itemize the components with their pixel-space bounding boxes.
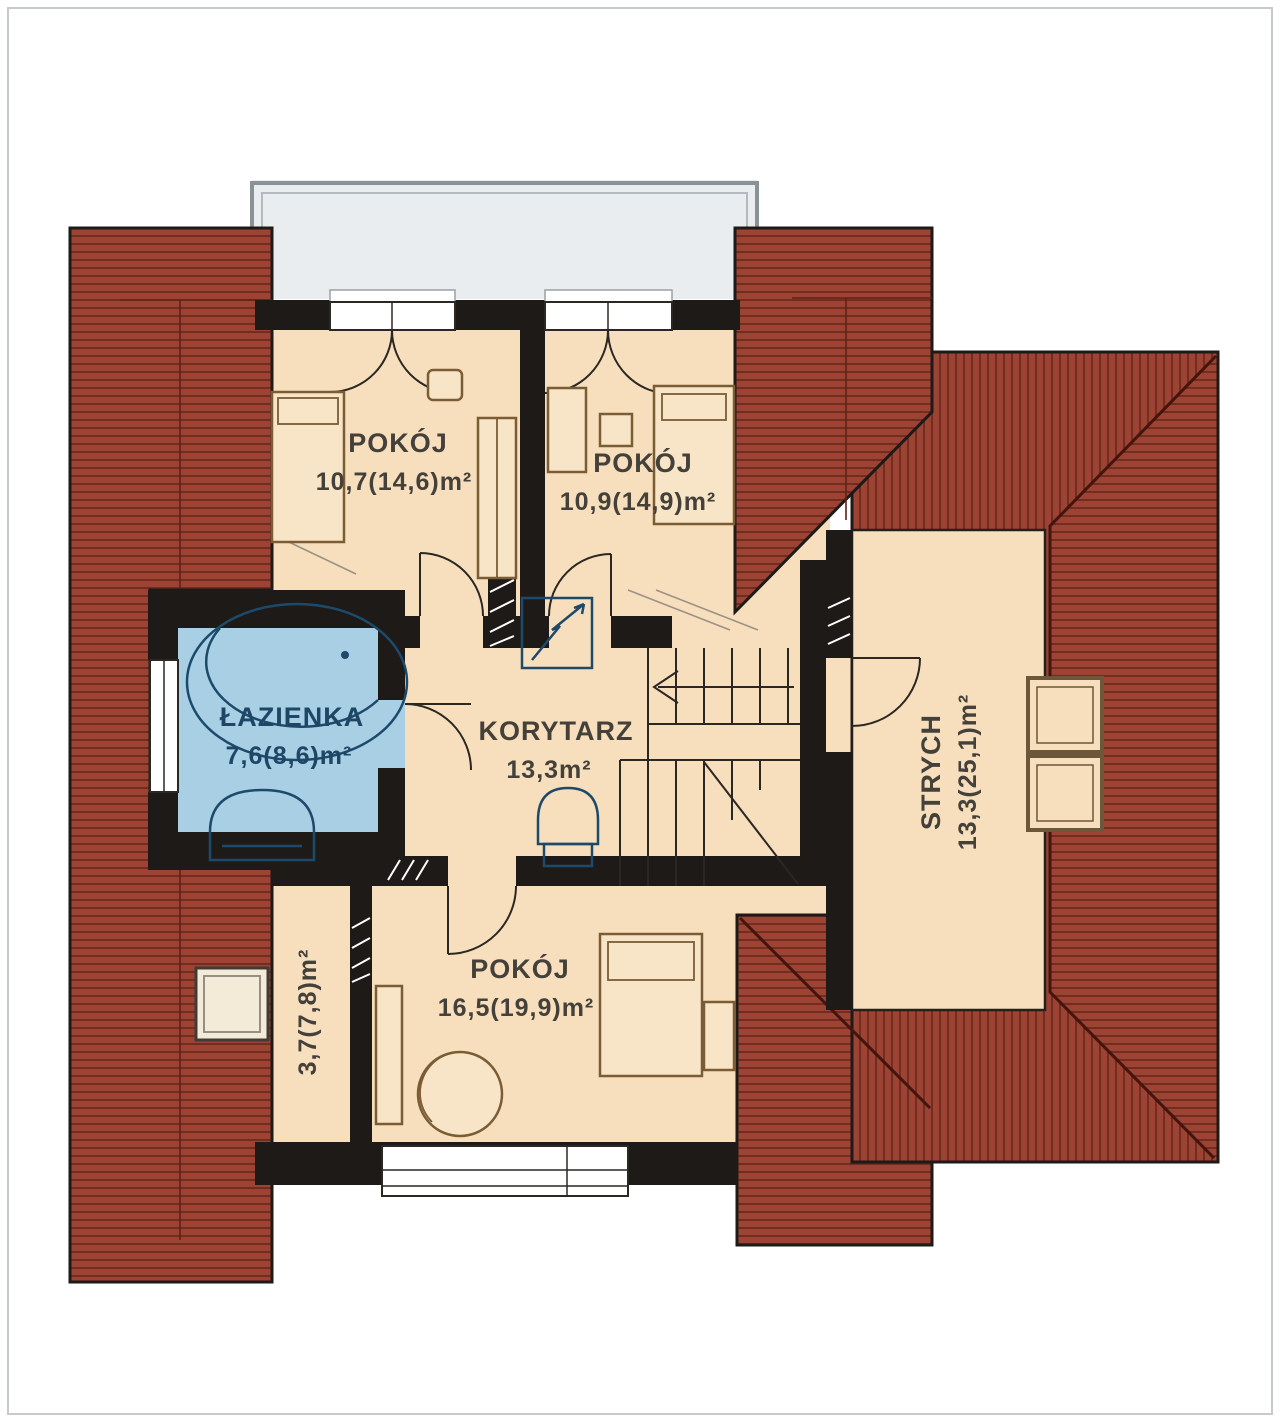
floor-plan-drawing: POKÓJ 10,7(14,6)m² POKÓJ 10,9(14,9)m² ŁA… [0, 0, 1280, 1422]
shelf [376, 986, 402, 1124]
room2-name: POKÓJ [593, 447, 693, 478]
attic-area: 13,3(25,1)m² [954, 694, 982, 851]
corridor-name: KORYTARZ [479, 716, 634, 746]
armchair [418, 1052, 502, 1136]
bottom-window [382, 1146, 628, 1196]
corridor-area: 13,3m² [506, 756, 591, 784]
room1-name: POKÓJ [348, 427, 448, 458]
wardrobe [548, 388, 586, 472]
balcony [252, 180, 757, 299]
attic-name: STRYCH [916, 714, 946, 830]
room3-name: POKÓJ [470, 953, 570, 984]
bathroom-name: ŁAZIENKA [220, 702, 365, 732]
nightstand [600, 414, 632, 446]
floor-plan-page: POKÓJ 10,7(14,6)m² POKÓJ 10,9(14,9)m² ŁA… [0, 0, 1280, 1422]
room3-area: 16,5(19,9)m² [438, 994, 595, 1022]
room2-area: 10,9(14,9)m² [560, 488, 717, 516]
nightstand [428, 370, 462, 400]
roof-skylight [196, 968, 268, 1040]
bathroom-window [150, 660, 178, 792]
nightstand [704, 1002, 734, 1070]
bed [600, 934, 702, 1076]
closet-area: 3,7(7,8)m² [294, 949, 322, 1076]
attic-roof-window [1028, 678, 1102, 752]
room1-area: 10,7(14,6)m² [316, 468, 473, 496]
bed [272, 392, 344, 542]
bathroom-area: 7,6(8,6)m² [226, 742, 353, 770]
attic-roof-window [1028, 756, 1102, 830]
attic-floor [852, 530, 1045, 1010]
